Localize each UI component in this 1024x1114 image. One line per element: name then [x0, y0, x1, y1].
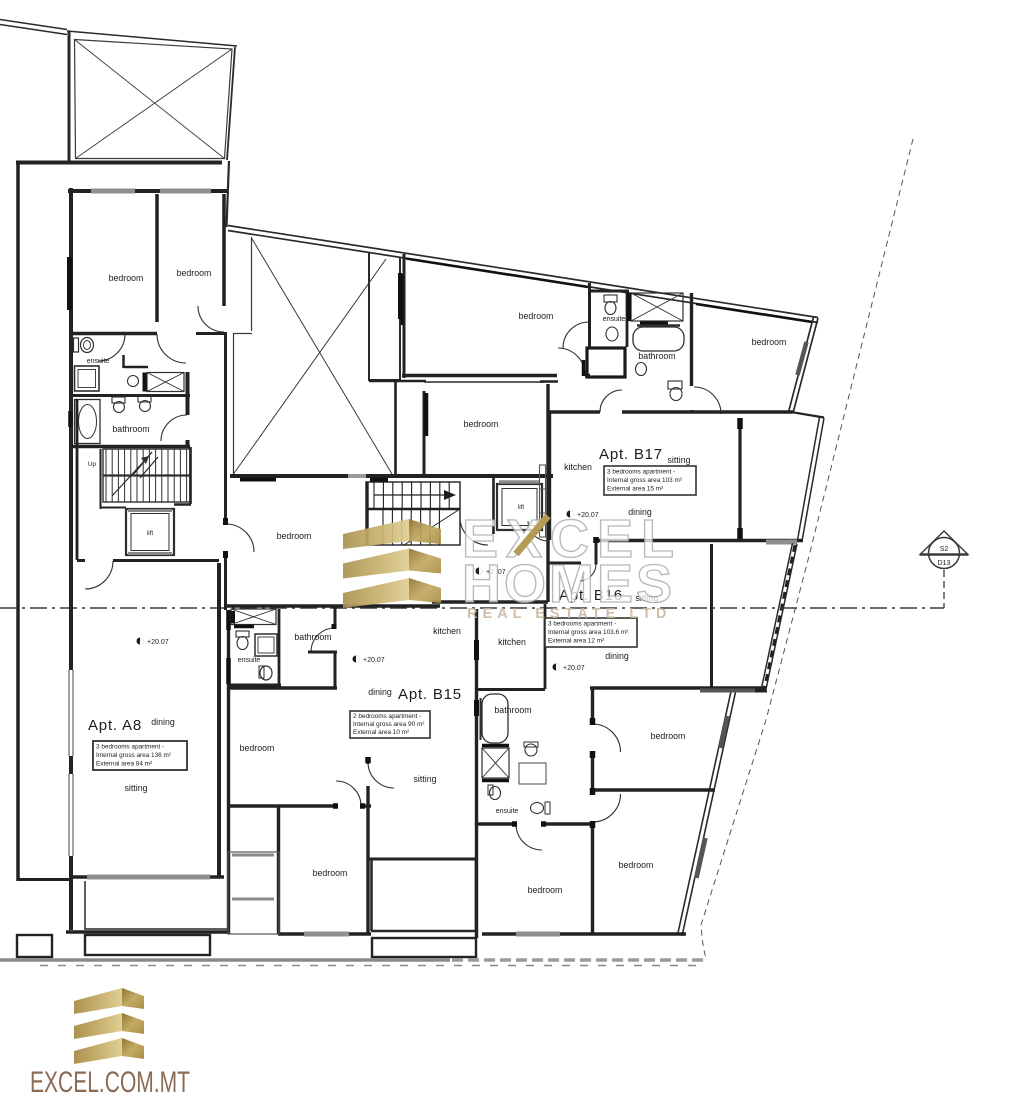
svg-text:bedroom: bedroom — [619, 860, 654, 870]
svg-text:bedroom: bedroom — [752, 337, 787, 347]
svg-text:ensuite: ensuite — [496, 808, 519, 815]
svg-text:bedroom: bedroom — [519, 311, 554, 321]
svg-text:bedroom: bedroom — [109, 273, 144, 283]
svg-text:Internal gross area 103.6 m²: Internal gross area 103.6 m² — [548, 629, 628, 636]
svg-text:ensuite: ensuite — [238, 657, 261, 664]
svg-text:Up: Up — [88, 461, 97, 468]
svg-text:Internal gross area 136 m²: Internal gross area 136 m² — [96, 752, 171, 759]
svg-text:bedroom: bedroom — [177, 268, 212, 278]
svg-text:bathroom: bathroom — [638, 351, 675, 361]
svg-text:2 bedrooms apartment -: 2 bedrooms apartment - — [353, 713, 421, 720]
svg-text:+20.07: +20.07 — [147, 639, 169, 646]
svg-text:bathroom: bathroom — [494, 705, 531, 715]
svg-text:External area 84 m²: External area 84 m² — [96, 761, 152, 768]
svg-text:sitting: sitting — [125, 783, 148, 793]
svg-text:REAL ESTATE LTD: REAL ESTATE LTD — [467, 606, 671, 622]
svg-text:bedroom: bedroom — [313, 868, 348, 878]
svg-text:EXCEL.COM.MT: EXCEL.COM.MT — [30, 1066, 190, 1099]
svg-text:+20.07: +20.07 — [363, 657, 385, 664]
svg-text:bedroom: bedroom — [651, 731, 686, 741]
svg-text:dining: dining — [368, 687, 392, 697]
svg-text:Internal gross area 90 m²: Internal gross area 90 m² — [353, 721, 424, 728]
svg-text:lift: lift — [147, 530, 154, 537]
svg-text:bedroom: bedroom — [464, 419, 499, 429]
svg-text:kitchen: kitchen — [433, 626, 461, 636]
svg-text:Internal gross area 103 m²: Internal gross area 103 m² — [607, 477, 682, 484]
svg-text:D13: D13 — [938, 560, 951, 567]
svg-text:bathroom: bathroom — [112, 424, 149, 434]
svg-text:sitting: sitting — [668, 455, 691, 465]
svg-text:External area 10 m²: External area 10 m² — [353, 729, 409, 736]
svg-text:3 bedrooms apartment -: 3 bedrooms apartment - — [607, 469, 675, 476]
svg-text:bedroom: bedroom — [277, 531, 312, 541]
svg-text:HOMES: HOMES — [462, 554, 675, 614]
svg-text:ensuite: ensuite — [603, 316, 626, 323]
svg-text:Apt. B15: Apt. B15 — [398, 686, 462, 703]
svg-text:kitchen: kitchen — [498, 637, 526, 647]
svg-text:dining: dining — [151, 717, 175, 727]
svg-text:+20.07: +20.07 — [563, 665, 585, 672]
svg-text:bedroom: bedroom — [240, 743, 275, 753]
svg-text:ensuite: ensuite — [87, 358, 110, 365]
svg-text:sitting: sitting — [414, 774, 437, 784]
svg-text:Apt. A8: Apt. A8 — [88, 717, 142, 734]
svg-text:kitchen: kitchen — [564, 462, 592, 472]
svg-text:bedroom: bedroom — [528, 885, 563, 895]
svg-text:Apt. B17: Apt. B17 — [599, 446, 663, 463]
svg-text:External area 15 m²: External area 15 m² — [607, 486, 663, 493]
svg-text:External area 12 m²: External area 12 m² — [548, 638, 604, 645]
svg-text:3 bedrooms apartment -: 3 bedrooms apartment - — [96, 744, 164, 751]
svg-text:S2: S2 — [940, 546, 949, 553]
svg-text:bathroom: bathroom — [294, 632, 331, 642]
svg-text:dining: dining — [605, 651, 629, 661]
